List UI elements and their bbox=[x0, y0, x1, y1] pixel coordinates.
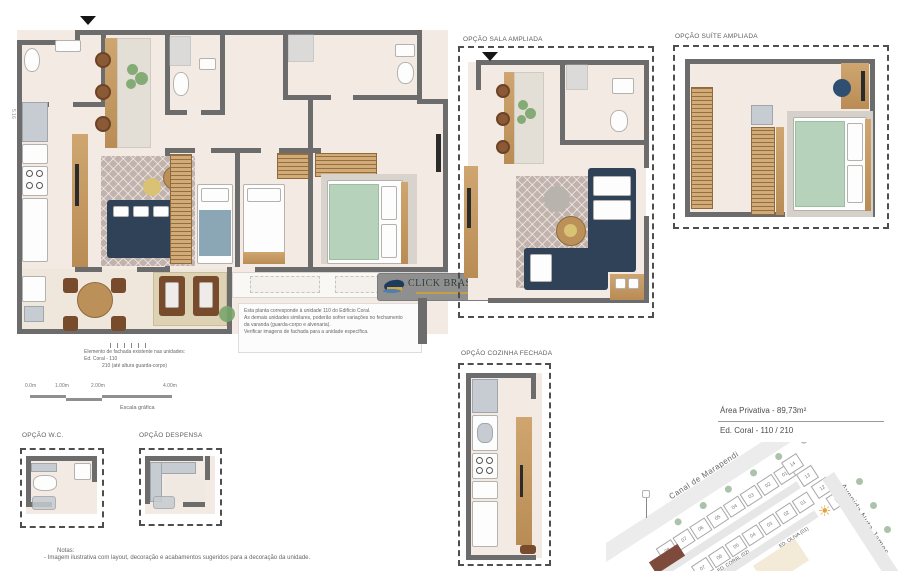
fachada-tick-marks bbox=[110, 343, 152, 348]
entry-marker-icon bbox=[482, 52, 498, 61]
wall bbox=[418, 298, 427, 344]
floor-plan-sheet: LAVABOCOZINHASALACIRC.QUARTOQUARTOSUÍTEB… bbox=[0, 0, 900, 571]
page-extras bbox=[0, 0, 900, 571]
entry-marker-icon bbox=[80, 16, 96, 25]
